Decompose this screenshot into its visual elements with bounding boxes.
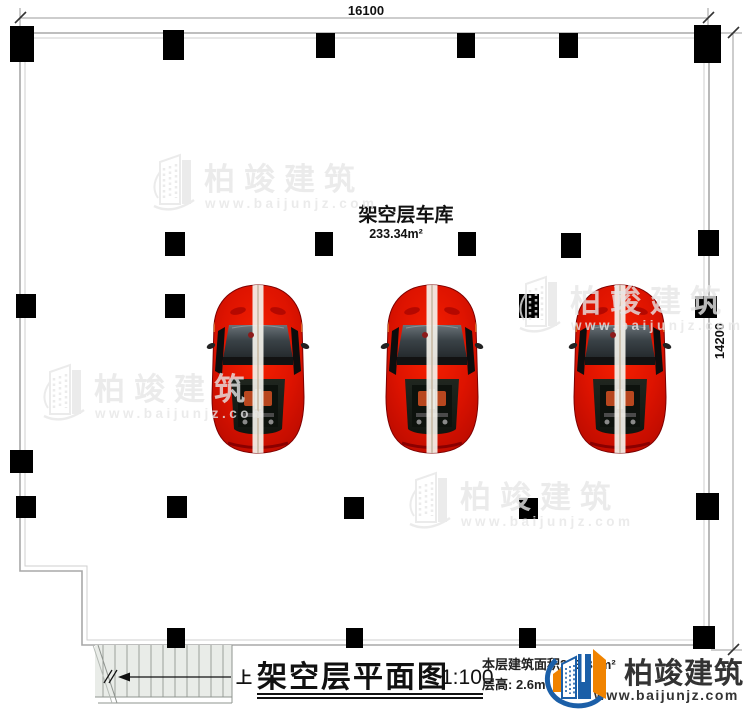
column bbox=[346, 628, 363, 648]
column bbox=[458, 232, 476, 256]
column bbox=[694, 25, 721, 63]
column bbox=[559, 33, 578, 58]
column bbox=[167, 496, 187, 518]
car-2 bbox=[380, 283, 484, 455]
dimension-top-value: 16100 bbox=[348, 3, 384, 18]
column bbox=[519, 628, 536, 648]
column bbox=[698, 230, 719, 256]
column bbox=[344, 497, 364, 519]
column bbox=[165, 294, 185, 318]
column bbox=[163, 30, 184, 60]
room-area: 233.34m² bbox=[369, 227, 423, 241]
column bbox=[693, 626, 715, 649]
column bbox=[165, 232, 185, 256]
column bbox=[16, 496, 36, 518]
stair: 上 bbox=[93, 645, 252, 703]
column bbox=[457, 33, 475, 58]
column bbox=[10, 26, 34, 62]
stair-up-label: 上 bbox=[236, 669, 252, 687]
column bbox=[316, 33, 335, 58]
watermark-4 bbox=[410, 473, 634, 529]
drawing-title: 架空层平面图 bbox=[257, 652, 449, 696]
column bbox=[315, 232, 333, 256]
column bbox=[167, 628, 185, 648]
company-name: 柏竣建筑 bbox=[624, 650, 744, 692]
column bbox=[16, 294, 36, 318]
car-1 bbox=[206, 283, 310, 455]
watermark-2 bbox=[520, 277, 744, 333]
column bbox=[696, 493, 719, 520]
floor-plan-page: 柏竣建筑 www.baijunjz.com 16100 14200 bbox=[0, 0, 750, 720]
company-logo-icon bbox=[540, 646, 620, 714]
floor-plan-drawing: 柏竣建筑 www.baijunjz.com 16100 14200 bbox=[0, 0, 750, 720]
column bbox=[10, 450, 33, 473]
column bbox=[561, 233, 581, 258]
title-underline bbox=[257, 693, 483, 699]
watermark-1 bbox=[154, 155, 378, 211]
watermark-3 bbox=[44, 365, 268, 421]
